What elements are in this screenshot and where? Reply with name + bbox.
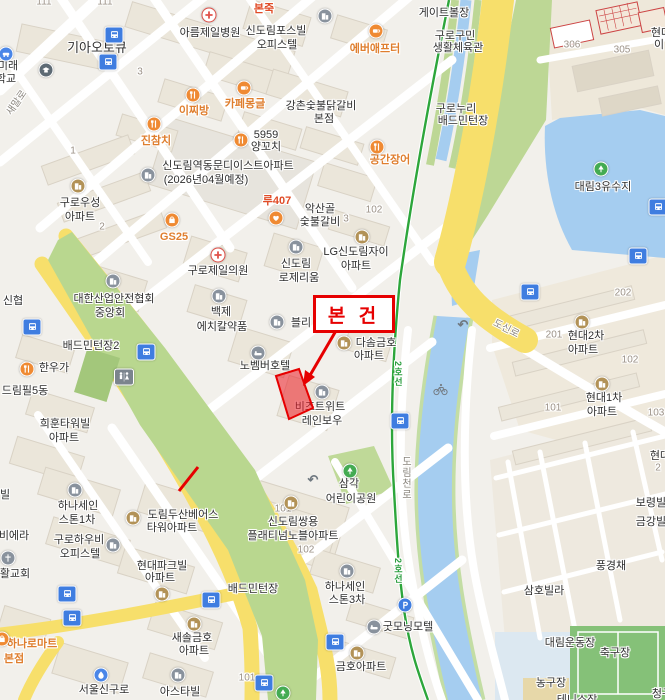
map-label: 신도림역동문디이스트아파트 bbox=[162, 160, 294, 172]
map-label: 현대2차 bbox=[568, 330, 604, 342]
cafe-poi-icon[interactable] bbox=[369, 24, 384, 39]
map-label: 블리 bbox=[291, 317, 311, 329]
map-label: 아파트 bbox=[341, 260, 371, 272]
map-label: 로제리움 bbox=[279, 272, 319, 284]
map-label: 오피스텔 bbox=[257, 39, 297, 51]
company-poi-icon[interactable] bbox=[106, 538, 121, 553]
company-poi-icon[interactable] bbox=[68, 483, 83, 498]
map-label: 카페몽글 bbox=[225, 98, 265, 110]
subject-annotation-box: 본 건 bbox=[313, 295, 395, 333]
map-canvas[interactable]: 기아오토큐미래학교아름제일병원신도림포스빌오피스텔게이트볼장구로구민생활체육관구… bbox=[0, 0, 665, 700]
map-label: 서울신구로 bbox=[79, 684, 130, 696]
map-label: 빌 bbox=[0, 489, 10, 501]
map-label: 양꼬치 bbox=[251, 141, 281, 153]
company-poi-icon[interactable] bbox=[106, 274, 121, 289]
map-label: 아파트 bbox=[568, 344, 598, 356]
map-label: 스톤3차 bbox=[329, 594, 365, 606]
apartment-poi-icon[interactable] bbox=[337, 336, 352, 351]
map-label: 스톤1차 bbox=[59, 514, 95, 526]
bus-stop-icon[interactable] bbox=[326, 634, 345, 651]
hotel-poi-icon[interactable] bbox=[367, 620, 382, 635]
bus-stop-icon[interactable] bbox=[58, 586, 77, 603]
bus-stop-icon[interactable] bbox=[255, 675, 274, 692]
map-label: 공간장어 bbox=[370, 154, 410, 166]
map-label: 현대파크빌 bbox=[137, 560, 188, 572]
uturn-poi-icon[interactable]: ↶ bbox=[455, 317, 471, 333]
building-number-label: 306 bbox=[564, 40, 581, 51]
map-label: 대림운동장 bbox=[545, 637, 596, 649]
hospital-poi-icon[interactable] bbox=[211, 248, 226, 263]
map-label: 현대1차 bbox=[586, 392, 622, 404]
map-label: 아파트 bbox=[65, 211, 95, 223]
bike-poi-icon[interactable] bbox=[432, 381, 448, 397]
map-label: 아스타빌 bbox=[160, 686, 200, 698]
store-poi-icon[interactable] bbox=[165, 213, 180, 228]
map-label: 구로우성 bbox=[60, 197, 100, 209]
map-label: 게이트볼장 bbox=[419, 7, 470, 19]
uturn-poi-icon[interactable]: ↶ bbox=[305, 472, 321, 488]
bus-stop-icon[interactable] bbox=[99, 54, 118, 71]
building-number-label: 2 bbox=[99, 222, 105, 233]
map-label: 진참치 bbox=[141, 135, 171, 147]
building-number-label: 102 bbox=[622, 355, 639, 366]
building-number-label: 103 bbox=[648, 408, 665, 419]
map-label: 테니스장 bbox=[557, 694, 597, 700]
map-label: 현대 bbox=[651, 27, 665, 39]
map-label: 타워아파트 bbox=[147, 522, 198, 534]
map-label: 신도림포스빌 bbox=[246, 25, 307, 37]
map-label: 도림두산베어스 bbox=[148, 509, 219, 521]
food-poi-icon[interactable] bbox=[20, 362, 35, 377]
map-label: 대한산업안전협회 bbox=[74, 293, 155, 305]
bus-stop-icon[interactable] bbox=[202, 592, 221, 609]
map-label: 아파트 bbox=[587, 406, 617, 418]
map-label: 배드민턴장 bbox=[228, 583, 279, 595]
map-label: 배드민턴장2 bbox=[63, 340, 120, 352]
bus-stop-icon[interactable] bbox=[629, 248, 648, 265]
map-label: LG신도림자이 bbox=[323, 246, 388, 258]
company-poi-icon[interactable] bbox=[270, 315, 285, 330]
map-label: 구로하우비 bbox=[54, 534, 105, 546]
map-label: 삼호빌라 bbox=[524, 585, 564, 597]
map-label: 이찌방 bbox=[179, 105, 209, 117]
building-number-label: 2 bbox=[655, 463, 661, 474]
church-poi-icon[interactable] bbox=[1, 551, 16, 566]
apartment-poi-icon[interactable] bbox=[350, 646, 365, 661]
map-label: 레인보우 bbox=[302, 415, 342, 427]
map-label: 아파트 bbox=[179, 645, 209, 657]
company-poi-icon[interactable] bbox=[318, 9, 333, 24]
fire-poi-icon[interactable] bbox=[94, 668, 109, 683]
parking-poi-icon[interactable] bbox=[398, 598, 413, 613]
map-label: 2호선 bbox=[392, 361, 402, 387]
building-number-label: 111 bbox=[36, 0, 51, 8]
map-label: 구로구민 bbox=[435, 30, 475, 42]
map-label: 노벰버호텔 bbox=[240, 360, 291, 372]
map-label: 드림필5동 bbox=[2, 385, 49, 397]
bus-stop-icon[interactable] bbox=[63, 610, 82, 627]
building-number-label: 111 bbox=[97, 0, 112, 8]
map-label: 루407 bbox=[263, 195, 291, 207]
map-label: 다솜금호 bbox=[356, 337, 396, 349]
building-number-label: 3 bbox=[343, 214, 349, 225]
food-poi-icon[interactable] bbox=[186, 88, 201, 103]
building-number-label: 3 bbox=[137, 67, 143, 78]
map-label: 중앙회 bbox=[95, 307, 125, 319]
bus-stop-icon[interactable] bbox=[391, 413, 410, 430]
map-label: 금강빌라 bbox=[636, 516, 665, 528]
map-label: 본죽 bbox=[254, 3, 274, 15]
map-label: 현대 bbox=[650, 450, 665, 462]
building-number-label: 202 bbox=[615, 288, 632, 299]
park-poi-icon[interactable] bbox=[276, 686, 291, 700]
cafe-poi-icon[interactable] bbox=[237, 81, 252, 96]
map-label: 이 bbox=[654, 39, 664, 51]
map-label: 2호선 bbox=[392, 558, 402, 584]
map-label: (2026년04월예정) bbox=[164, 174, 249, 186]
map-label: 하나로마트 bbox=[7, 638, 58, 650]
map-label: 대림3유수지 bbox=[575, 181, 632, 193]
subject-annotation-label: 본 건 bbox=[328, 301, 380, 328]
map-label: 에치칼약품 bbox=[197, 321, 248, 333]
map-label: 풍경채 bbox=[596, 560, 626, 572]
hospital-poi-icon[interactable] bbox=[202, 8, 217, 23]
building-number-label: 101 bbox=[545, 403, 562, 414]
apartment-poi-icon[interactable] bbox=[575, 315, 590, 330]
apartment-poi-icon[interactable] bbox=[187, 617, 202, 632]
bus-stop-icon[interactable] bbox=[649, 199, 665, 216]
map-label: 에버애프터 bbox=[350, 43, 401, 55]
food-poi-icon[interactable] bbox=[234, 133, 249, 148]
map-label: 청구 bbox=[652, 688, 665, 700]
building-number-label: 1 bbox=[70, 146, 76, 157]
map-label: 하나세인 bbox=[58, 500, 98, 512]
company-poi-icon[interactable] bbox=[141, 168, 156, 183]
heart-poi-icon[interactable] bbox=[269, 211, 284, 226]
company-poi-icon[interactable] bbox=[289, 240, 304, 255]
building-number-label: 102 bbox=[366, 205, 383, 216]
food-poi-icon[interactable] bbox=[370, 140, 385, 155]
apartment-poi-icon[interactable] bbox=[71, 179, 86, 194]
map-label: 신도림 bbox=[281, 258, 311, 270]
map-label: 아파트 bbox=[49, 432, 79, 444]
map-label: 미래 bbox=[0, 60, 18, 72]
building-number-label: 102 bbox=[298, 545, 315, 556]
map-label: 신협 bbox=[3, 295, 23, 307]
restroom-poi-icon[interactable] bbox=[114, 369, 134, 386]
map-label: 한우가 bbox=[39, 362, 69, 374]
map-label: 비에라 bbox=[0, 530, 29, 542]
map-label: 백제 bbox=[211, 306, 231, 318]
map-label: 본점 bbox=[314, 113, 334, 125]
map-label: 아름제일병원 bbox=[180, 27, 241, 39]
map-label: 보령빌라 bbox=[636, 497, 665, 509]
school-poi-icon[interactable] bbox=[39, 63, 54, 78]
map-label: 구로누리 bbox=[436, 103, 476, 115]
hotel-poi-icon[interactable] bbox=[251, 346, 266, 361]
building-number-label: 101 bbox=[239, 673, 256, 684]
apartment-poi-icon[interactable] bbox=[355, 230, 370, 245]
map-label: 신도림쌍용 bbox=[268, 516, 319, 528]
map-label: 아파트 bbox=[145, 572, 175, 584]
apartment-poi-icon[interactable] bbox=[155, 587, 170, 602]
bus-stop-icon[interactable] bbox=[23, 319, 42, 336]
map-label: 새솔금호 bbox=[172, 632, 212, 644]
map-label: 악산골 bbox=[305, 203, 335, 215]
apartment-poi-icon[interactable] bbox=[284, 496, 299, 511]
map-label: 희훈타워빌 bbox=[40, 418, 91, 430]
bus-stop-icon[interactable] bbox=[521, 284, 540, 301]
map-label: 축구장 bbox=[600, 647, 630, 659]
park-poi-icon[interactable] bbox=[594, 162, 609, 177]
map-label: 강촌숯불닭갈비 bbox=[286, 100, 357, 112]
building-number-label: 201 bbox=[546, 330, 563, 341]
map-label: GS25 bbox=[160, 231, 188, 243]
map-label: 활교회 bbox=[0, 568, 30, 580]
map-label: 학교 bbox=[0, 73, 16, 85]
map-label: 플래티넘노블아파트 bbox=[247, 530, 338, 542]
map-label: 숯불갈비 bbox=[300, 216, 340, 228]
map-label: 배드민턴장 bbox=[438, 115, 489, 127]
map-label: 아파트 bbox=[354, 350, 384, 362]
bus-stop-icon[interactable] bbox=[137, 344, 156, 361]
road-label: 도림천로 bbox=[400, 456, 411, 500]
food-poi-icon[interactable] bbox=[147, 117, 162, 132]
map-label: 어린이공원 bbox=[326, 493, 377, 505]
company-poi-icon[interactable] bbox=[171, 668, 186, 683]
apartment-poi-icon[interactable] bbox=[595, 377, 610, 392]
map-label: 오피스텔 bbox=[60, 548, 100, 560]
map-label: 굿모닝모텔 bbox=[383, 621, 434, 633]
company-poi-icon[interactable] bbox=[212, 289, 227, 304]
map-label: 비즈트위트 bbox=[295, 401, 346, 413]
map-label: 본점 bbox=[4, 653, 24, 665]
map-label: 삼각 bbox=[339, 478, 359, 490]
building-number-label: 305 bbox=[614, 45, 631, 56]
company-poi-icon[interactable] bbox=[315, 385, 330, 400]
map-label: 5959 bbox=[254, 129, 278, 141]
map-label: 농구장 bbox=[536, 677, 566, 689]
company-poi-icon[interactable] bbox=[340, 564, 355, 579]
map-label: 하나세인 bbox=[325, 581, 365, 593]
map-label: 금호아파트 bbox=[336, 661, 387, 673]
apartment-poi-icon[interactable] bbox=[126, 511, 141, 526]
map-label: 생활체육관 bbox=[433, 42, 484, 54]
map-label: 구로제일의원 bbox=[188, 265, 249, 277]
park-poi-icon[interactable] bbox=[343, 464, 358, 479]
bus-stop-icon[interactable] bbox=[105, 27, 124, 44]
